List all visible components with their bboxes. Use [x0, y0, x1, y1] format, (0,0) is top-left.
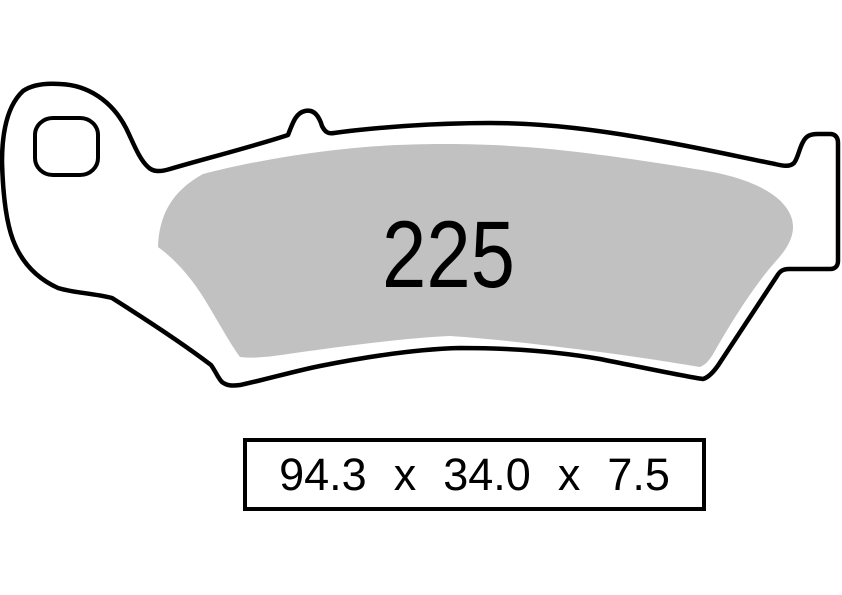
dimension-length: 94.3: [279, 449, 367, 501]
part-number: 225: [382, 202, 515, 308]
dimensions-box: 94.3 x 34.0 x 7.5: [243, 438, 706, 511]
brake-pad-diagram-page: 225 94.3 x 34.0 x 7.5: [0, 0, 842, 595]
mounting-hole: [35, 118, 98, 175]
dimension-separator: x: [558, 449, 581, 501]
dimension-separator: x: [394, 449, 417, 501]
dimension-width: 34.0: [443, 449, 531, 501]
dimension-thickness: 7.5: [607, 449, 670, 501]
